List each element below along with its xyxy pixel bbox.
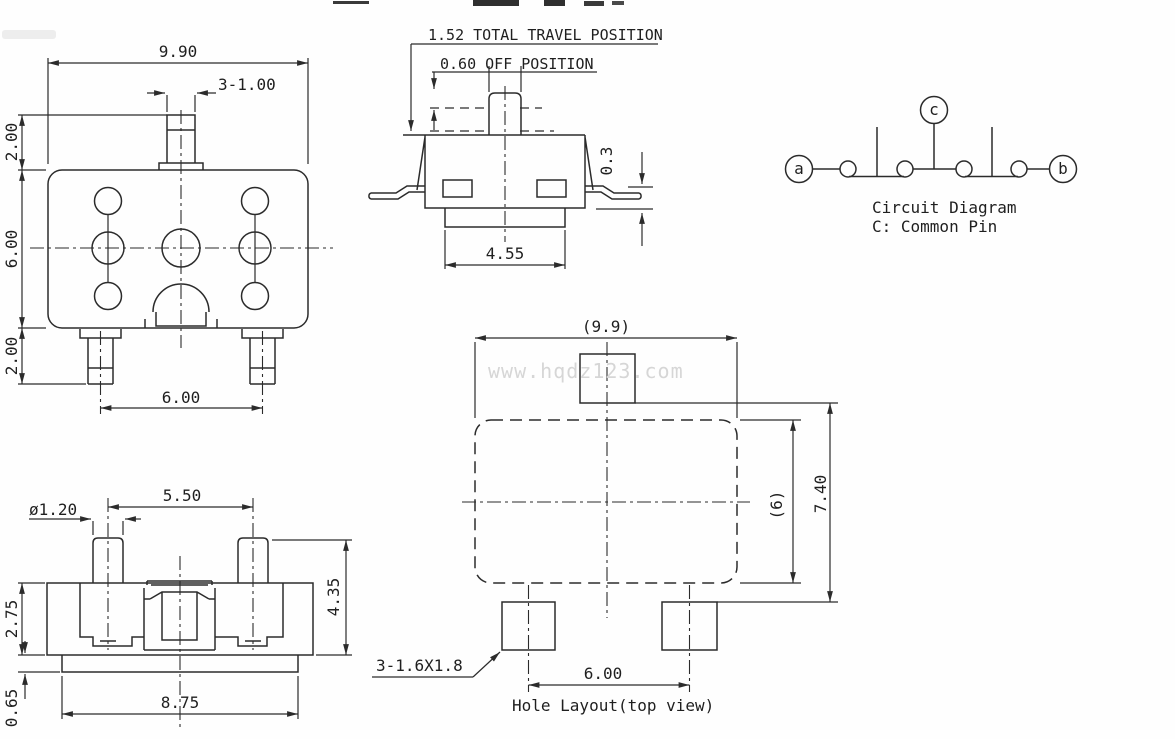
dim-total-height-label: 7.40 (811, 475, 830, 514)
dim-pin-height-label: 2.00 (2, 337, 21, 376)
engineering-drawing-sheet: 9.90 3-1.00 2.00 6.00 2.00 6.00 1.52 TOT… (0, 0, 1175, 739)
crop-mark (544, 0, 565, 6)
circuit-wires (813, 124, 1050, 177)
terminal-b-label: b (1058, 159, 1068, 178)
side-view: 1.52 TOTAL TRAVEL POSITION 0.60 OFF POSI… (369, 26, 663, 269)
crop-mark (333, 1, 369, 4)
terminal-c-label: c (929, 100, 939, 119)
crop-mark (584, 1, 604, 6)
note-total-travel: 1.52 TOTAL TRAVEL POSITION (428, 26, 663, 44)
circuit-diagram: a b c Circuit Diagram C: Common Pin (786, 97, 1077, 237)
note-off-position: 0.60 OFF POSITION (440, 55, 594, 73)
body-window (443, 180, 472, 197)
contact-point (897, 161, 913, 177)
switch-body-outline (48, 170, 308, 328)
leader-arrow (473, 652, 500, 677)
dim-base-height-label: 0.65 (2, 689, 21, 728)
dim-top-width-label: 9.90 (159, 42, 198, 61)
circuit-title: Circuit Diagram (872, 198, 1017, 217)
left-pocket (80, 583, 144, 646)
contact-hole (95, 188, 122, 215)
dim-height-ref-label: (6) (767, 491, 786, 520)
contact-point (1011, 161, 1027, 177)
extension-lines (167, 95, 195, 112)
crop-mark (612, 1, 624, 5)
watermark-text: www.hqdz123.com (488, 359, 684, 383)
dim-body-height-label: 6.00 (2, 230, 21, 269)
dim-stem-height-label: 2.00 (2, 123, 21, 162)
contact-hole (95, 283, 122, 310)
faded-watermark-smudge (2, 30, 56, 39)
centerlines (462, 342, 750, 692)
dim-body-height-label: 2.75 (2, 600, 21, 639)
contact-hole (242, 283, 269, 310)
contact-point (956, 161, 972, 177)
dim-width-ref-label: (9.9) (582, 317, 630, 336)
dim-total-height-label: 4.35 (324, 578, 343, 617)
body-window (537, 180, 566, 197)
extension-lines (48, 58, 308, 164)
right-pocket (215, 583, 283, 646)
terminal-a-label: a (794, 159, 804, 178)
dim-hole-span-label: 6.00 (584, 664, 623, 683)
front-view: ø1.20 5.50 2.75 0.65 4.35 8.75 (2, 486, 352, 731)
hole-layout-caption: Hole Layout(top view) (512, 696, 714, 715)
contact-point (840, 161, 856, 177)
crop-mark (473, 0, 519, 6)
dim-stem-label: 3-1.00 (218, 75, 276, 94)
dim-post-dia-label: ø1.20 (29, 500, 77, 519)
dim-base-width-label: 4.55 (486, 244, 525, 263)
drawing-canvas: 9.90 3-1.00 2.00 6.00 2.00 6.00 1.52 TOT… (0, 0, 1175, 739)
dim-lead-label: 0.3 (597, 147, 616, 176)
note-hole-size-label: 3-1.6X1.8 (376, 656, 463, 675)
dim-base-width-label: 8.75 (161, 693, 200, 712)
top-view: 9.90 3-1.00 2.00 6.00 2.00 6.00 (2, 42, 333, 414)
circuit-subtitle: C: Common Pin (872, 217, 997, 236)
extension-lines (596, 187, 653, 209)
contact-hole (242, 188, 269, 215)
dim-post-span-label: 5.50 (163, 486, 202, 505)
dim-pin-span-label: 6.00 (162, 388, 201, 407)
